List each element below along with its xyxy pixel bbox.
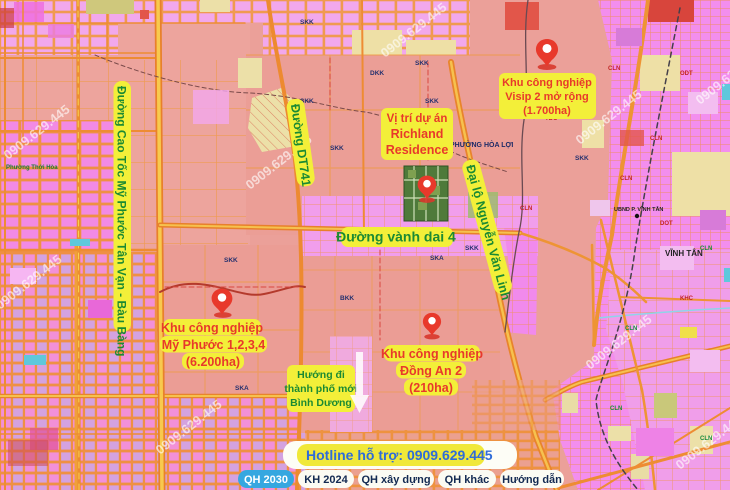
- svg-text:Đường Cao Tốc Mỹ Phước Tân Vạn: Đường Cao Tốc Mỹ Phước Tân Vạn - Bàu Bàn…: [115, 86, 129, 356]
- svg-text:SKK: SKK: [465, 245, 479, 252]
- svg-text:SKA: SKA: [235, 385, 249, 392]
- svg-text:QH xây dựng: QH xây dựng: [361, 474, 430, 486]
- svg-text:Richland: Richland: [391, 127, 444, 141]
- svg-text:thành phố mới: thành phố mới: [284, 383, 357, 395]
- svg-text:KHC: KHC: [680, 296, 694, 302]
- svg-text:SKK: SKK: [415, 60, 429, 67]
- svg-text:Mỹ Phước 1,2,3,4: Mỹ Phước 1,2,3,4: [162, 338, 265, 352]
- svg-text:Hotline hỗ trợ: 0909.629.445: Hotline hỗ trợ: 0909.629.445: [306, 447, 493, 463]
- svg-text:Vị trí dự án: Vị trí dự án: [387, 113, 448, 125]
- svg-text:Đường vành dai 4: Đường vành dai 4: [336, 229, 456, 245]
- svg-text:SKA: SKA: [430, 255, 444, 262]
- svg-text:Hướng dẫn: Hướng dẫn: [502, 473, 562, 486]
- svg-text:(1.700ha): (1.700ha): [523, 105, 571, 117]
- svg-text:SKK: SKK: [224, 257, 238, 264]
- svg-text:CLN: CLN: [520, 206, 532, 212]
- svg-text:Visip 2 mở rộng: Visip 2 mở rộng: [505, 91, 588, 103]
- svg-text:VĨNH TÂN: VĨNH TÂN: [665, 249, 703, 258]
- svg-text:SKK: SKK: [425, 98, 439, 105]
- svg-text:CLN: CLN: [700, 436, 712, 442]
- svg-text:QH khác: QH khác: [445, 474, 490, 486]
- svg-text:SKK: SKK: [575, 155, 589, 162]
- svg-text:CLN: CLN: [610, 406, 622, 412]
- svg-text:CLN: CLN: [650, 136, 662, 142]
- svg-text:Khu công nghiệp: Khu công nghiệp: [161, 321, 263, 335]
- svg-text:Bình Dương: Bình Dương: [290, 397, 352, 409]
- svg-text:Đồng An 2: Đồng An 2: [400, 364, 462, 378]
- svg-text:SKK: SKK: [330, 145, 344, 152]
- svg-text:BKK: BKK: [340, 295, 354, 302]
- svg-text:DOT: DOT: [660, 221, 673, 227]
- svg-text:ODT: ODT: [680, 71, 693, 77]
- svg-text:CLN: CLN: [625, 326, 637, 332]
- svg-text:SKK: SKK: [300, 19, 314, 26]
- svg-text:(210ha): (210ha): [409, 381, 453, 395]
- svg-text:Phường Thới Hòa: Phường Thới Hòa: [6, 165, 58, 171]
- svg-text:QH 2030: QH 2030: [244, 474, 288, 486]
- svg-text:CLN: CLN: [620, 176, 632, 182]
- svg-text:KH 2024: KH 2024: [304, 474, 348, 486]
- svg-text:Khu công nghiệp: Khu công nghiệp: [381, 347, 483, 361]
- svg-text:Khu công nghiệp: Khu công nghiệp: [502, 77, 592, 89]
- svg-text:Residence: Residence: [386, 143, 449, 157]
- svg-text:DKK: DKK: [370, 70, 384, 77]
- svg-text:PHƯỜNG HÒA LỢI: PHƯỜNG HÒA LỢI: [450, 140, 513, 149]
- svg-text:Hướng đi: Hướng đi: [297, 369, 345, 381]
- svg-text:UBND P. VĨNH TÂN: UBND P. VĨNH TÂN: [614, 206, 663, 213]
- svg-text:(6.200ha): (6.200ha): [186, 355, 240, 369]
- svg-text:CLN: CLN: [608, 66, 620, 72]
